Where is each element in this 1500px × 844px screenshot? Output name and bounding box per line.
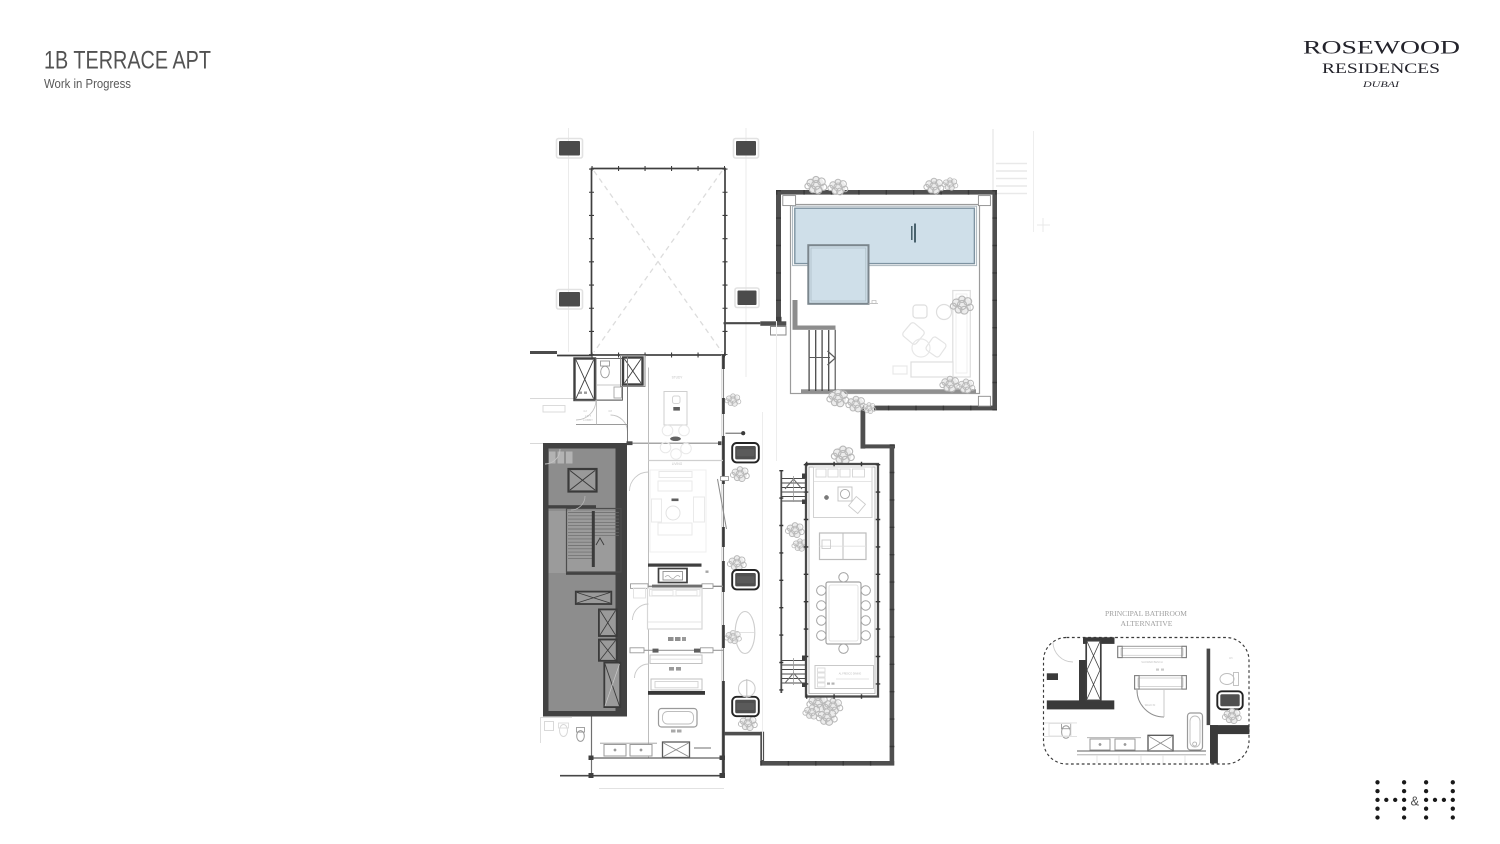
- svg-text:SHOWER BENCH: SHOWER BENCH: [1141, 660, 1163, 664]
- svg-text:LIVING: LIVING: [672, 462, 683, 466]
- svg-text:3.8: 3.8: [608, 409, 612, 413]
- svg-text:1B TERRACE APT: 1B TERRACE APT: [44, 47, 211, 75]
- svg-text:ALTERNATIVE: ALTERNATIVE: [1121, 620, 1173, 628]
- svg-text:DUBAI: DUBAI: [1362, 79, 1401, 89]
- svg-text:&: &: [1410, 794, 1419, 809]
- svg-text:AL FRESCO DINING: AL FRESCO DINING: [839, 673, 862, 676]
- svg-text:STUDY: STUDY: [672, 376, 684, 380]
- svg-text:WC: WC: [1229, 657, 1233, 660]
- svg-text:LOBBY: LOBBY: [583, 418, 593, 422]
- svg-text:PRINCIPAL BATHROOM: PRINCIPAL BATHROOM: [1105, 610, 1188, 618]
- svg-text:ROSEWOOD: ROSEWOOD: [1303, 38, 1460, 59]
- svg-text:4.2: 4.2: [583, 409, 587, 413]
- svg-text:Work in Progress: Work in Progress: [44, 76, 131, 91]
- svg-text:RESIDENCES: RESIDENCES: [1322, 61, 1440, 77]
- svg-text:WALK IN: WALK IN: [1145, 703, 1156, 707]
